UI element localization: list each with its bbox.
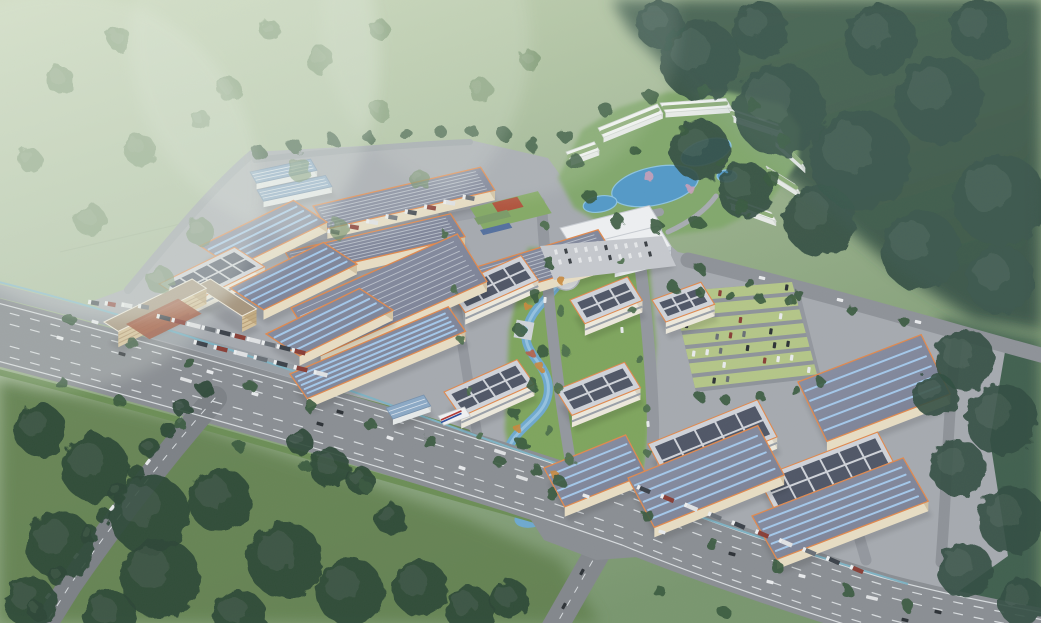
tree-canopy <box>441 231 449 239</box>
tree-canopy <box>554 476 566 488</box>
tree-canopy <box>565 455 575 465</box>
tree-cluster <box>743 277 753 287</box>
tree-canopy <box>174 418 186 430</box>
internal-road-vehicle <box>543 297 546 303</box>
tree-canopy <box>128 464 144 480</box>
tree-canopy <box>677 125 687 135</box>
tree-canopy <box>476 432 484 440</box>
tree-cluster <box>554 476 566 488</box>
canopy-highlight <box>257 532 295 570</box>
tree-canopy <box>790 385 800 395</box>
tree-cluster <box>541 221 549 229</box>
tree-cluster <box>913 373 957 417</box>
tree-cluster <box>611 215 625 229</box>
tree-cluster <box>718 606 730 618</box>
tree-canopy <box>364 418 376 430</box>
tree-cluster <box>184 358 196 370</box>
tree-canopy <box>160 422 176 438</box>
internal-road-vehicle <box>620 327 623 333</box>
tree-cluster <box>526 378 538 390</box>
tree-cluster <box>721 395 731 405</box>
tree-cluster <box>677 125 687 135</box>
tree-canopy <box>526 348 534 356</box>
tree-canopy <box>583 189 597 203</box>
tree-canopy <box>114 396 126 408</box>
tree-cluster <box>966 384 1038 456</box>
canopy-highlight <box>724 169 752 197</box>
tree-cluster <box>14 404 66 456</box>
tree-canopy <box>721 395 731 405</box>
tree-cluster <box>706 538 718 550</box>
tree-cluster <box>466 388 474 396</box>
tree-canopy <box>695 263 705 273</box>
tree-cluster <box>27 601 45 619</box>
tree-cluster <box>140 438 160 458</box>
tree-canopy <box>508 406 520 418</box>
tree-cluster <box>247 522 323 598</box>
tree-canopy <box>636 356 644 364</box>
tree-cluster <box>555 305 565 315</box>
canopy-highlight <box>452 592 476 616</box>
canopy-highlight <box>495 585 515 605</box>
tree-cluster <box>359 480 371 492</box>
tree-cluster <box>304 400 316 412</box>
tree-canopy <box>616 256 624 264</box>
tree-cluster <box>234 440 246 452</box>
tree-canopy <box>526 378 538 390</box>
tree-cluster <box>691 217 705 231</box>
tree-cluster <box>616 256 624 264</box>
canopy-highlight <box>399 567 427 595</box>
tree-cluster <box>695 391 705 401</box>
tree-cluster <box>565 455 575 465</box>
tree-canopy <box>543 425 553 435</box>
tree-canopy <box>628 306 636 314</box>
tree-canopy <box>706 538 718 550</box>
internal-road-vehicle <box>646 421 650 427</box>
tree-cluster <box>795 291 805 301</box>
tree-cluster <box>96 508 112 524</box>
tree-canopy <box>847 305 857 315</box>
canopy-highlight <box>51 569 61 579</box>
tree-canopy <box>642 510 654 522</box>
tree-cluster <box>441 231 449 239</box>
tree-cluster <box>476 432 484 440</box>
tree-cluster <box>374 502 406 534</box>
tree-cluster <box>725 291 735 301</box>
tree-cluster <box>546 488 558 500</box>
tree-cluster <box>815 377 825 387</box>
tree-canopy <box>686 184 694 192</box>
tree-canopy <box>304 400 316 412</box>
canopy-highlight <box>130 548 170 588</box>
tree-canopy <box>646 451 654 459</box>
tree-canopy <box>642 404 650 412</box>
canopy-highlight <box>325 567 359 601</box>
tree-canopy <box>555 305 565 315</box>
tree-canopy <box>755 293 765 303</box>
tree-canopy <box>695 287 705 297</box>
tree-canopy <box>695 391 705 401</box>
canopy-highlight <box>29 603 38 612</box>
tree-cluster <box>631 147 641 157</box>
tree-cluster <box>642 510 654 522</box>
canopy-highlight <box>70 443 104 477</box>
tree-cluster <box>523 302 531 310</box>
tree-cluster <box>561 347 571 357</box>
tree-canopy <box>755 391 765 401</box>
canopy-highlight <box>315 453 335 473</box>
tree-cluster <box>48 566 68 586</box>
canopy-highlight <box>221 597 247 623</box>
tree-canopy <box>725 291 735 301</box>
tree-cluster <box>108 482 128 502</box>
aerial-site-rendering <box>0 0 1041 623</box>
tree-canopy <box>451 286 459 294</box>
tree-cluster <box>364 418 376 430</box>
tree-canopy <box>542 256 554 268</box>
tree-cluster <box>715 157 725 167</box>
tree-cluster <box>755 391 765 401</box>
tree-canopy <box>423 435 437 449</box>
tree-canopy <box>197 380 213 396</box>
tree-cluster <box>537 346 549 358</box>
tree-cluster <box>651 221 665 235</box>
tree-canopy <box>530 464 542 476</box>
tree-cluster <box>583 189 597 203</box>
tree-canopy <box>553 383 563 393</box>
tree-canopy <box>784 294 796 306</box>
tree-cluster <box>114 396 126 408</box>
canopy-highlight <box>919 379 941 401</box>
canopy-highlight <box>944 549 972 577</box>
tree-cluster <box>451 286 459 294</box>
tree-canopy <box>654 586 666 598</box>
canopy-highlight <box>943 338 973 368</box>
tree-cluster <box>840 584 852 596</box>
tree-canopy <box>764 170 780 186</box>
tree-cluster <box>902 600 914 612</box>
canopy-highlight <box>35 520 69 554</box>
tree-cluster <box>536 362 544 370</box>
tree-cluster <box>847 305 857 315</box>
canopy-highlight <box>987 495 1021 529</box>
tree-canopy <box>840 584 852 596</box>
tree-cluster <box>628 306 636 314</box>
tree-cluster <box>553 383 563 393</box>
tree-canopy <box>530 290 542 302</box>
tree-canopy <box>536 362 544 370</box>
canopy-highlight <box>91 597 117 623</box>
tree-cluster <box>937 542 993 598</box>
tree-canopy <box>514 424 522 432</box>
tree-canopy <box>541 221 549 229</box>
tree-cluster <box>392 560 448 616</box>
tree-cluster <box>695 287 705 297</box>
tree-cluster <box>666 280 678 292</box>
tree-cluster <box>530 290 542 302</box>
tree-cluster <box>188 468 252 532</box>
tree-canopy <box>651 221 665 235</box>
canopy-highlight <box>21 411 47 437</box>
tree-canopy <box>458 336 466 344</box>
tree-canopy <box>96 508 112 524</box>
tree-canopy <box>466 388 474 396</box>
tree-cluster <box>310 448 350 488</box>
tree-cluster <box>490 580 530 620</box>
tree-cluster <box>559 278 567 286</box>
tree-canopy <box>546 488 558 500</box>
canopy-highlight <box>175 401 184 410</box>
tree-cluster <box>316 558 384 623</box>
tree-cluster <box>695 263 705 273</box>
tree-cluster <box>514 324 526 336</box>
tree-cluster <box>643 171 653 181</box>
tree-cluster <box>755 293 765 303</box>
tree-canopy <box>815 377 825 387</box>
tree-cluster <box>197 380 213 396</box>
tree-canopy <box>743 277 753 287</box>
tree-cluster <box>784 294 796 306</box>
tree-cluster <box>287 429 313 455</box>
tree-cluster <box>790 385 800 395</box>
canopy-highlight <box>378 506 394 522</box>
tree-cluster <box>543 425 553 435</box>
tree-cluster <box>299 460 311 472</box>
tree-cluster <box>526 348 534 356</box>
tree-canopy <box>715 157 725 167</box>
tree-canopy <box>359 480 371 492</box>
tree-cluster <box>770 560 782 572</box>
canopy-highlight <box>937 447 965 475</box>
tree-cluster <box>346 466 374 494</box>
tree-canopy <box>537 346 549 358</box>
tree-cluster <box>173 399 191 417</box>
tree-canopy <box>734 200 750 216</box>
tree-cluster <box>530 464 542 476</box>
tree-cluster <box>686 184 694 192</box>
tree-cluster <box>128 464 144 480</box>
tree-cluster <box>636 356 644 364</box>
tree-cluster <box>642 404 650 412</box>
tree-cluster <box>542 256 554 268</box>
tree-canopy <box>643 171 653 181</box>
canopy-highlight <box>143 441 153 451</box>
tree-cluster <box>423 435 437 449</box>
tree-canopy <box>244 380 256 392</box>
canopy-highlight <box>111 485 121 495</box>
tree-canopy <box>559 278 567 286</box>
tree-cluster <box>508 406 520 418</box>
tree-canopy <box>516 438 528 450</box>
tree-canopy <box>299 460 311 472</box>
tree-cluster <box>458 336 466 344</box>
tree-cluster <box>514 424 522 432</box>
canopy-highlight <box>975 393 1011 429</box>
tree-cluster <box>494 456 506 468</box>
tree-canopy <box>666 280 678 292</box>
tree-canopy <box>234 440 246 452</box>
canopy-highlight <box>196 476 228 508</box>
tree-canopy <box>900 317 910 327</box>
tree-cluster <box>174 418 186 430</box>
industrial-park-rendering <box>0 0 1041 623</box>
tree-cluster <box>654 586 666 598</box>
tree-canopy <box>611 215 625 229</box>
tree-canopy <box>523 302 531 310</box>
canopy-highlight <box>81 527 91 537</box>
tree-cluster <box>764 170 780 186</box>
tree-canopy <box>770 560 782 572</box>
tree-canopy <box>902 600 914 612</box>
tree-cluster <box>516 438 528 450</box>
tree-canopy <box>631 147 641 157</box>
tree-canopy <box>494 456 506 468</box>
tree-cluster <box>244 380 256 392</box>
tree-canopy <box>795 291 805 301</box>
tree-canopy <box>184 358 196 370</box>
tree-canopy <box>718 606 730 618</box>
tree-canopy <box>691 217 705 231</box>
tree-cluster <box>646 451 654 459</box>
tree-cluster <box>160 422 176 438</box>
tree-canopy <box>561 347 571 357</box>
canopy-highlight <box>1004 584 1028 608</box>
tree-canopy <box>514 324 526 336</box>
tree-cluster <box>930 440 986 496</box>
tree-cluster <box>734 200 750 216</box>
canopy-highlight <box>290 432 303 445</box>
tree-cluster <box>78 524 98 544</box>
tree-cluster <box>900 317 910 327</box>
